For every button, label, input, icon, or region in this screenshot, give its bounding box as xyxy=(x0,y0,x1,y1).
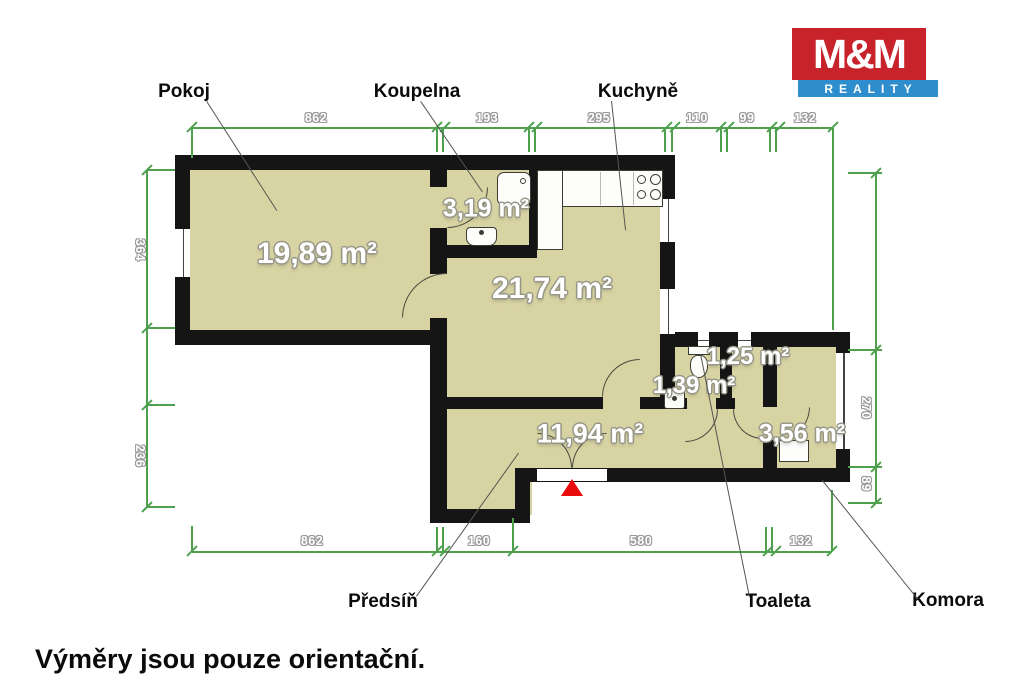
area-unnamed-storage: 1,25 m² xyxy=(707,343,790,371)
wall-pokoj-right-c xyxy=(430,318,447,348)
dim-line-top xyxy=(192,127,833,129)
label-komora: Komora xyxy=(912,590,984,612)
area-koupelna: 3,19 m² xyxy=(443,195,529,224)
footer-note: Výměry jsou pouze orientační. xyxy=(35,644,425,675)
area-predsin: 11,94 m² xyxy=(537,419,644,450)
wall-hall-step xyxy=(515,468,530,514)
wall-pokoj-right-a xyxy=(430,155,447,187)
window-kitchen-right-2 xyxy=(660,288,675,335)
area-kuchyne: 21,74 m² xyxy=(492,272,612,306)
label-predsin: Předsíň xyxy=(348,591,418,613)
wall-bath-kitchen xyxy=(529,155,537,255)
area-pokoj: 19,89 m² xyxy=(257,237,377,271)
stove-burner-3 xyxy=(637,190,646,199)
bath-sink-tap-icon xyxy=(479,230,484,235)
stove-burner-1 xyxy=(637,175,646,184)
logo-reality-text: REALITY xyxy=(818,82,917,96)
label-koupelna: Koupelna xyxy=(374,81,461,103)
dim-bottom-132: 132 xyxy=(790,534,812,548)
leader-komora xyxy=(822,480,918,599)
dim-left-236: 236 xyxy=(133,445,147,467)
logo-mm-text: M&M xyxy=(813,31,905,78)
area-komora: 3,56 m² xyxy=(759,420,845,449)
dim-right-89: 89 xyxy=(859,477,873,492)
wall-hall-bottom xyxy=(430,509,530,523)
counter-seam-1 xyxy=(600,172,601,205)
dim-top-99: 99 xyxy=(740,111,755,125)
stove-burner-2 xyxy=(650,174,661,185)
wall-hall-left xyxy=(430,345,447,523)
dim-top-132: 132 xyxy=(794,111,816,125)
mm-reality-logo: M&M xyxy=(792,28,926,80)
dim-top-110: 110 xyxy=(686,111,708,125)
wall-pokoj-bottom xyxy=(175,330,447,345)
dim-top-862: 862 xyxy=(305,111,327,125)
dim-top-295: 295 xyxy=(588,111,610,125)
dim-bottom-160: 160 xyxy=(468,534,490,548)
wall-wing-bottom xyxy=(607,468,850,482)
shower-drain-icon xyxy=(520,178,526,184)
window-pokoj-left xyxy=(175,228,190,278)
kitchen-column-icon xyxy=(537,170,563,250)
counter-seam-2 xyxy=(633,172,634,205)
label-toaleta: Toaleta xyxy=(745,591,810,613)
floor-plan-canvas: 862 193 295 110 99 132 862 160 580 132 3… xyxy=(0,0,1024,683)
dim-right-270: 270 xyxy=(859,397,873,419)
mm-reality-logo-bar: REALITY xyxy=(798,80,938,97)
label-kuchyne: Kuchyně xyxy=(598,81,678,103)
dim-line-right xyxy=(875,173,877,503)
wall-bath-bottom xyxy=(430,245,537,258)
dim-left-364: 364 xyxy=(133,239,147,261)
dim-top-193: 193 xyxy=(476,111,498,125)
label-pokoj: Pokoj xyxy=(158,81,210,103)
dim-bottom-580: 580 xyxy=(630,534,652,548)
area-toaleta: 1,39 m² xyxy=(653,372,736,400)
entrance-marker-icon xyxy=(561,479,583,496)
dim-bottom-862: 862 xyxy=(301,534,323,548)
wall-hall-living-a xyxy=(447,397,603,409)
stove-burner-4 xyxy=(650,189,661,200)
